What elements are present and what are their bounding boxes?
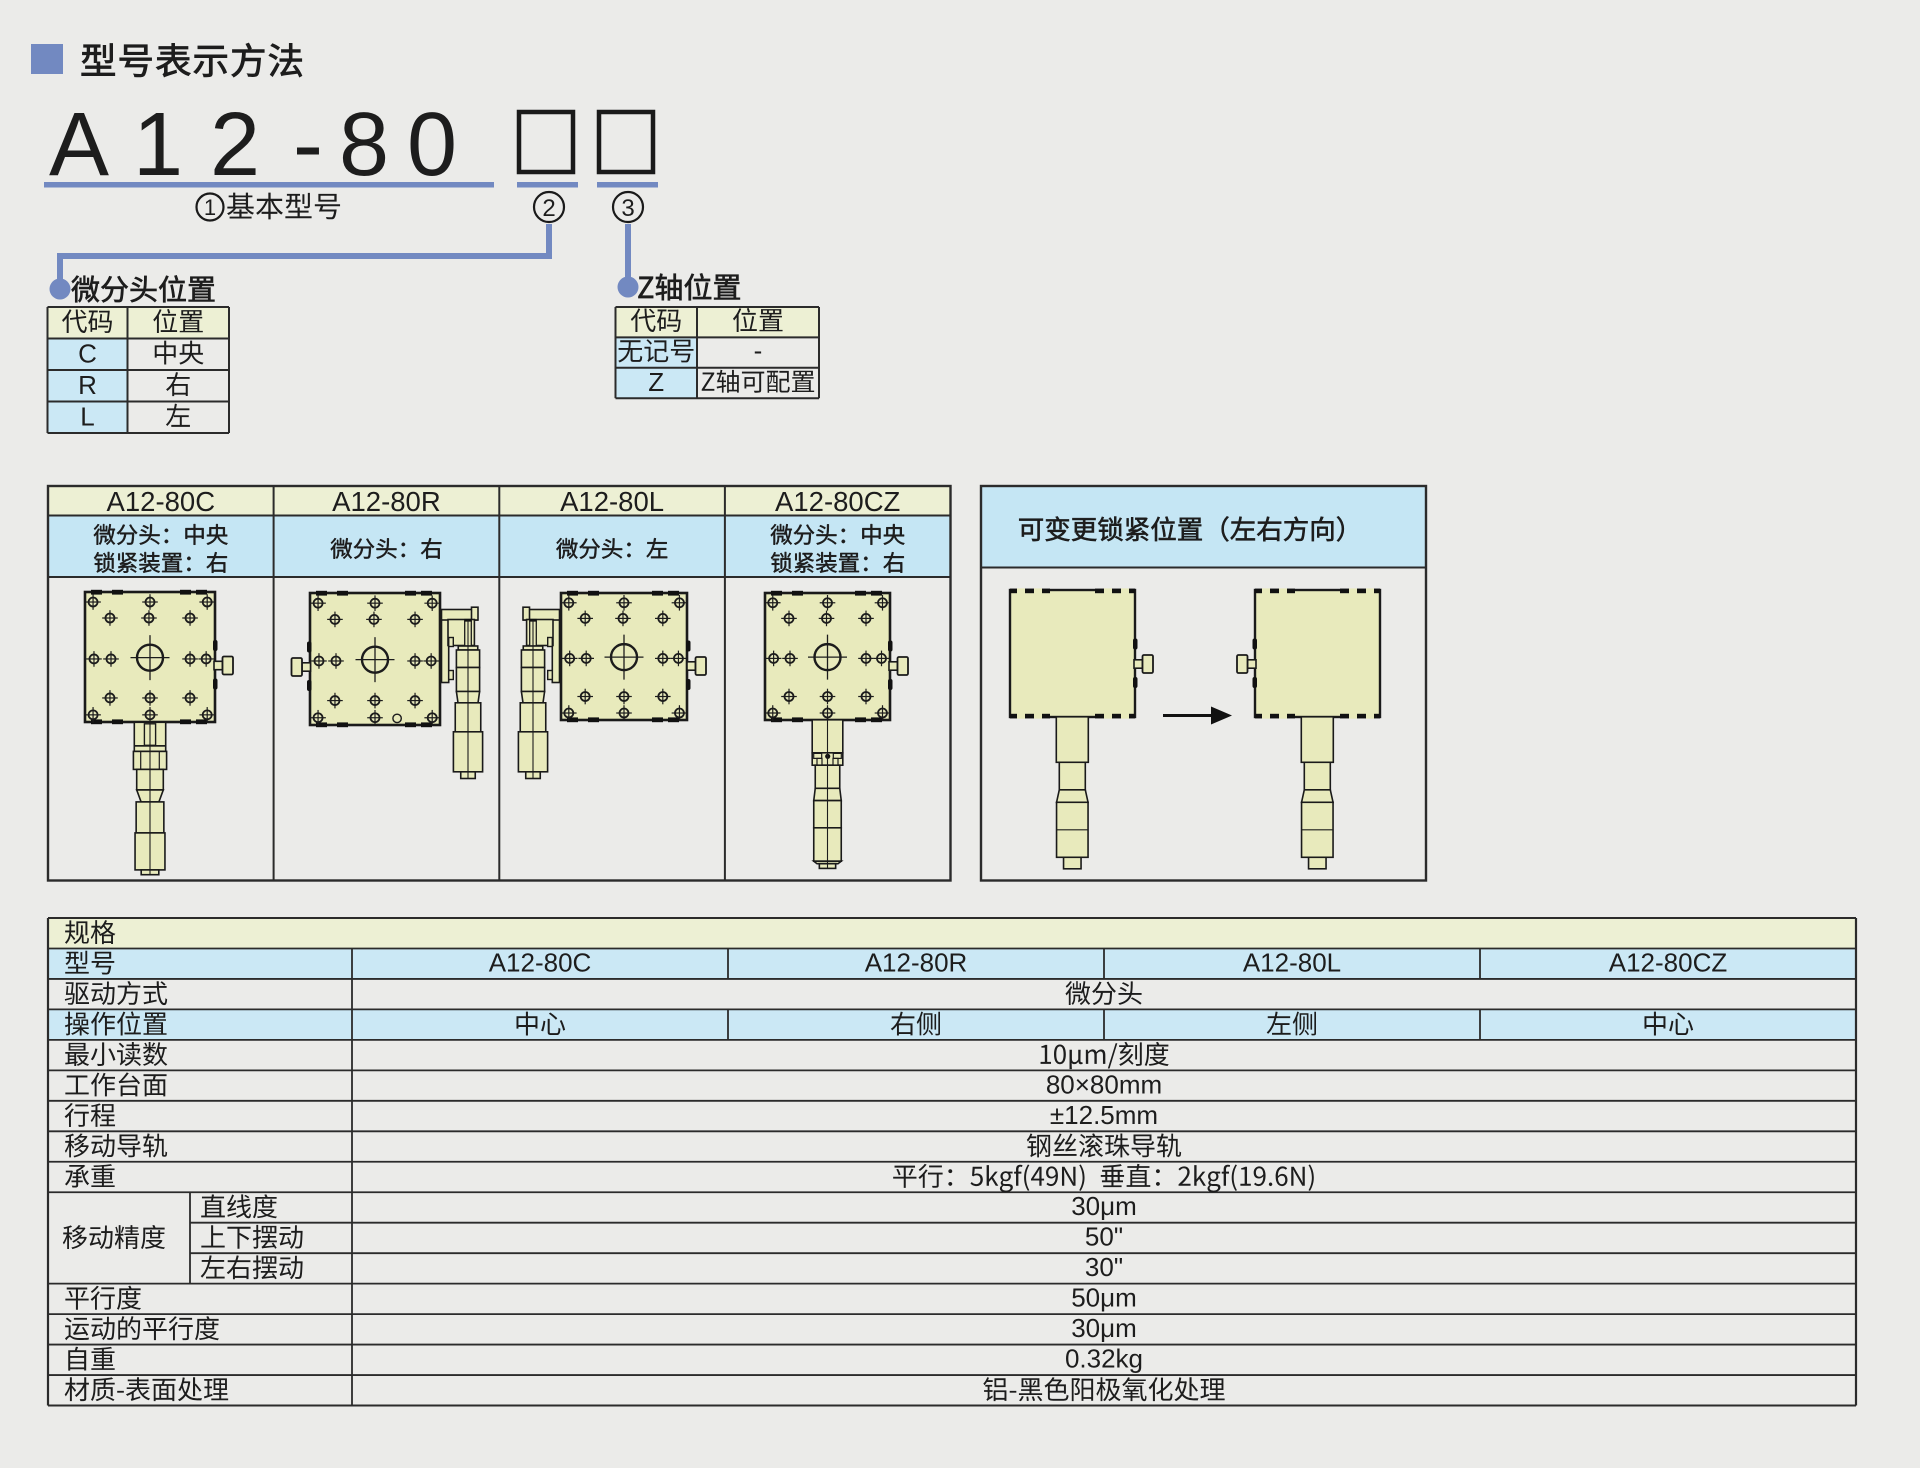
svg-text:A12-80L: A12-80L xyxy=(1243,947,1341,977)
svg-text:8: 8 xyxy=(339,95,389,195)
svg-text:±12.5mm: ±12.5mm xyxy=(1050,1100,1158,1130)
svg-text:-: - xyxy=(754,335,763,365)
svg-text:0: 0 xyxy=(407,95,457,195)
svg-text:C: C xyxy=(78,339,97,369)
svg-text:A: A xyxy=(49,95,109,195)
svg-text:A12-80C: A12-80C xyxy=(107,486,216,517)
svg-text:50": 50" xyxy=(1085,1222,1123,1252)
svg-text:1: 1 xyxy=(133,95,183,195)
svg-text:A12-80L: A12-80L xyxy=(560,486,664,517)
svg-text:30": 30" xyxy=(1085,1252,1123,1282)
svg-text:80×80mm: 80×80mm xyxy=(1046,1069,1162,1099)
svg-text:A12-80R: A12-80R xyxy=(332,486,441,517)
svg-text:2: 2 xyxy=(210,95,260,195)
svg-text:Z: Z xyxy=(648,367,664,397)
svg-text:A12-80CZ: A12-80CZ xyxy=(1609,947,1728,977)
svg-text:30μm: 30μm xyxy=(1071,1191,1137,1221)
svg-text:2: 2 xyxy=(542,195,555,222)
svg-text:0.32kg: 0.32kg xyxy=(1065,1344,1143,1374)
svg-text:R: R xyxy=(78,370,97,400)
svg-text:A12-80C: A12-80C xyxy=(489,947,592,977)
svg-text:L: L xyxy=(80,402,94,432)
svg-text:A12-80CZ: A12-80CZ xyxy=(775,486,900,517)
svg-text:1: 1 xyxy=(204,195,216,220)
svg-text:3: 3 xyxy=(621,195,634,222)
svg-text:A12-80R: A12-80R xyxy=(865,947,968,977)
svg-text:50μm: 50μm xyxy=(1071,1283,1137,1313)
svg-text:-: - xyxy=(293,95,323,195)
svg-text:30μm: 30μm xyxy=(1071,1313,1137,1343)
